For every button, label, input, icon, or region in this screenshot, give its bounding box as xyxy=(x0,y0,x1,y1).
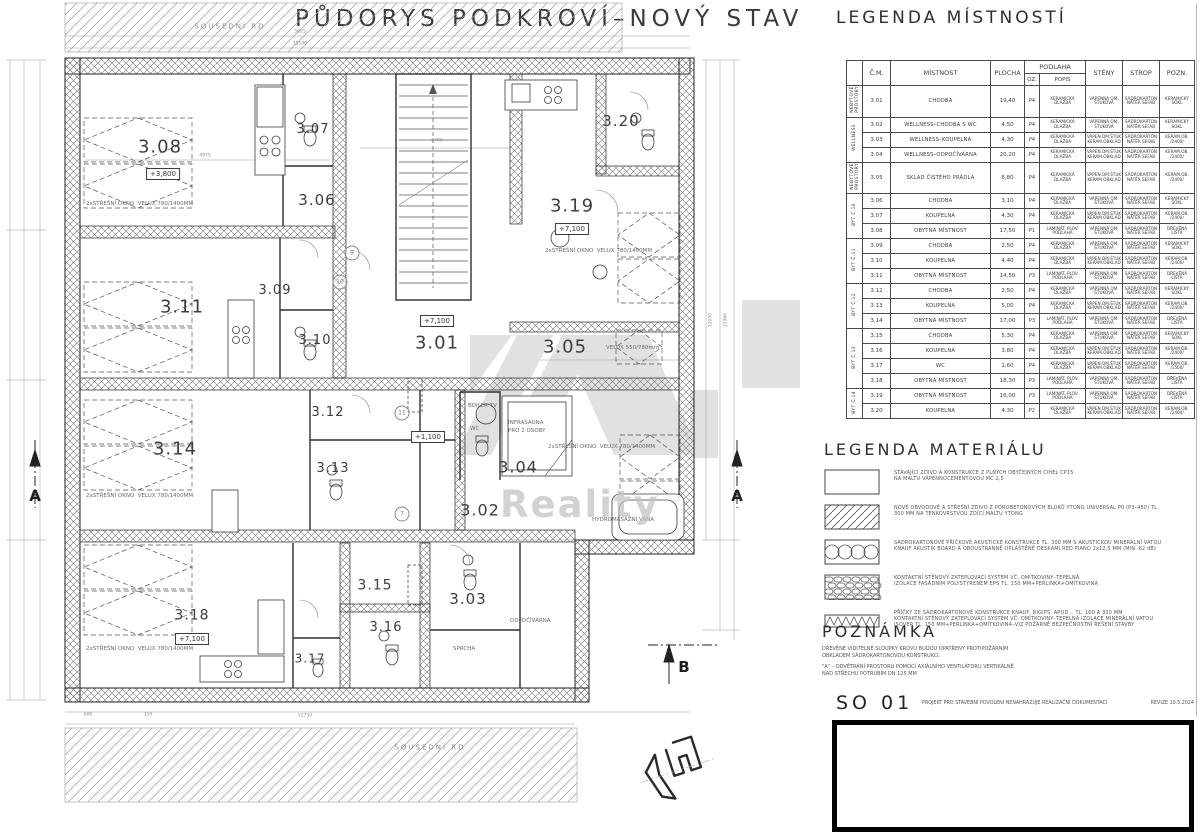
materials-legend: LEGENDA MATERIÁLU STÁVAJÍCÍ ZDIVO A KONS… xyxy=(824,440,1196,644)
col-cm: Č.M. xyxy=(863,61,891,86)
table-row: 29,00 M2 WELLNESS3.02WELLNESS–CHODBA S W… xyxy=(847,117,1195,132)
table-row: 19,70 M2 NEBYTOVÉPROSTORY3.05SKLAD ČISTÉ… xyxy=(847,162,1195,194)
col-pozn: POZN. xyxy=(1160,61,1195,86)
material-item: KONTAKTNÍ STĚNOVÝ ZATEPLOVACÍ SYSTÉM VČ.… xyxy=(824,574,1196,600)
note-lines: DŘEVĚNÉ VIDITELNÉ SLOUPKY KROVU BUDOU OP… xyxy=(822,646,1196,678)
watermark-text: Reality xyxy=(500,483,660,526)
room-legend-table: Č.M. MÍSTNOSTPLOCHA PODLAHASTĚNY STROPPO… xyxy=(846,60,1195,419)
note-line: DŘEVĚNÉ VIDITELNÉ SLOUPKY KROVU BUDOU OP… xyxy=(822,646,1196,660)
note-line: "A" – ODVĚTRÁNÍ PROSTORU POMOCÍ AXIÁLNÍH… xyxy=(822,664,1196,678)
legend-table-title: LEGENDA MÍSTNOSTÍ xyxy=(836,8,1067,28)
table-row: 24,90 M2 BYT Č.103.06CHODBA 3,10P4 KERAM… xyxy=(847,194,1195,209)
north-arrow-icon xyxy=(632,732,723,807)
group-cell: 24,50 M2 BYT Č.12 xyxy=(847,284,863,329)
title-block xyxy=(832,720,1194,832)
revision-label: REVIZE 10.5.2024 xyxy=(1151,701,1194,706)
col-strop: STROP xyxy=(1123,61,1160,86)
material-symbol-bricks xyxy=(824,574,882,600)
material-text: SÁDROKARTONOVÉ PŘÍČKOVÉ AKUSTICKÉ KONSTR… xyxy=(894,539,1161,552)
group-name: NEBYTOVÉPROSTORY xyxy=(850,163,860,190)
group-cell: 21,40 M2 BYT Č.11 xyxy=(847,239,863,284)
material-text: STÁVAJÍCÍ ZDIVO A KONSTRUKCE Z PLNÝCH OB… xyxy=(894,469,1074,482)
material-symbol-loops xyxy=(824,539,882,565)
table-row: 3.17WC 1,60P4 KERAMICKÁ DLAŽBAVÁPEN.OM.Š… xyxy=(847,359,1195,374)
note-title: POZNÁMKA xyxy=(822,622,1196,641)
col-steny: STĚNY xyxy=(1086,61,1123,86)
floor-plan xyxy=(0,0,820,833)
footer-text: PROJEKT PRO STAVEBNÍ POVOLENÍ NENAHRAZUJ… xyxy=(922,701,1107,706)
col-plocha: PLOCHA xyxy=(991,61,1025,86)
table-row: 3.04WELLNESS–ODPOČÍVÁRNA 20,20P4 KERAMIC… xyxy=(847,147,1195,162)
group-name: NEBYTOVÉPROSTORY xyxy=(850,86,860,113)
staircase xyxy=(396,74,471,300)
table-row: 3.03WELLNESS–KOUPELNA 4,30P4 KERAMICKÁ D… xyxy=(847,132,1195,147)
col-popis: POPIS xyxy=(1040,74,1086,86)
material-symbol-diag xyxy=(824,504,882,530)
footer-row: SO 01 PROJEKT PRO STAVEBNÍ POVOLENÍ NENA… xyxy=(836,692,1196,716)
group-cell: 24,90 M2 BYT Č.10 xyxy=(847,194,863,239)
table-row: 3.13KOUPELNA 5,00P4 KERAMICKÁ DLAŽBAVÁPE… xyxy=(847,299,1195,314)
table-row: 3.10KOUPELNA 4,40P4 KERAMICKÁ DLAŽBAVÁPE… xyxy=(847,254,1195,269)
material-item: SÁDROKARTONOVÉ PŘÍČKOVÉ AKUSTICKÉ KONSTR… xyxy=(824,539,1196,565)
table-row: 21,40 M2 BYT Č.113.09CHODBA 2,50P4 KERAM… xyxy=(847,239,1195,254)
group-name: WELLNESS xyxy=(852,124,857,151)
table-row: 20,30 M2 BYT Č.143.19OBYTNÁ MÍSTNOST 16,… xyxy=(847,389,1195,404)
col-mistnost: MÍSTNOST xyxy=(891,61,991,86)
group-cell: 20,30 M2 BYT Č.14 xyxy=(847,389,863,419)
group-cell: 29,00 M2 WELLNESS xyxy=(847,117,863,162)
table-row: 3.14OBYTNÁ MÍSTNOST 17,00P3 LAMINÁT. PLO… xyxy=(847,314,1195,329)
materials-legend-title: LEGENDA MATERIÁLU xyxy=(824,440,1196,459)
table-row: 3.16KOUPELNA 3,80P4 KERAMICKÁ DLAŽBAVÁPE… xyxy=(847,344,1195,359)
table-row: 3.08OBYTNÁ MÍSTNOST 17,50P1 LAMINÁT. PLO… xyxy=(847,224,1195,239)
materials-items: STÁVAJÍCÍ ZDIVO A KONSTRUKCE Z PLNÝCH OB… xyxy=(824,469,1196,635)
group-name: BYT Č.12 xyxy=(852,293,857,316)
table-row: 25,30 M2 NEBYTOVÉPROSTORY3.01CHODBA 19,4… xyxy=(847,86,1195,118)
table-row: 3.20KOUPELNA 4,30P2 KERAMICKÁ DLAŽBAVÁPE… xyxy=(847,404,1195,419)
material-text: NOVÉ OBVODOVÉ A STŘEŠNÍ ZDIVO Z PÓROBETO… xyxy=(894,504,1159,517)
page-edge-line xyxy=(1196,4,1197,716)
drawing-sheet: PŮDORYS PODKROVÍ–NOVÝ STAV xyxy=(0,0,1200,833)
col-podlaha: PODLAHA xyxy=(1025,61,1086,74)
table-row: 3.18OBYTNÁ MÍSTNOST 18,30P3 LAMINÁT. PLO… xyxy=(847,374,1195,389)
table-row: 3.11OBYTNÁ MÍSTNOST 14,50P3 LAMINÁT. PLO… xyxy=(847,269,1195,284)
table-row: 24,50 M2 BYT Č.123.12CHODBA 2,50P4 KERAM… xyxy=(847,284,1195,299)
table-row: 3.07KOUPELNA 4,30P4 KERAMICKÁ DLAŽBAVÁPE… xyxy=(847,209,1195,224)
group-name: BYT Č.14 xyxy=(852,391,857,414)
group-name: BYT Č.10 xyxy=(852,203,857,226)
col-oz: OZ. xyxy=(1025,74,1040,86)
material-item: NOVÉ OBVODOVÉ A STŘEŠNÍ ZDIVO Z PÓROBETO… xyxy=(824,504,1196,530)
table-row: 29,00 M2 BYT Č.133.15CHODBA 5,30P4 KERAM… xyxy=(847,329,1195,344)
material-symbol-plain xyxy=(824,469,882,495)
drawing-code: SO 01 xyxy=(836,692,913,714)
group-cell: 29,00 M2 BYT Č.13 xyxy=(847,329,863,389)
group-name: BYT Č.13 xyxy=(852,346,857,369)
note-block: POZNÁMKA DŘEVĚNÉ VIDITELNÉ SLOUPKY KROVU… xyxy=(822,622,1196,682)
material-item: STÁVAJÍCÍ ZDIVO A KONSTRUKCE Z PLNÝCH OB… xyxy=(824,469,1196,495)
group-cell: 25,30 M2 NEBYTOVÉPROSTORY xyxy=(847,86,863,118)
material-text: KONTAKTNÍ STĚNOVÝ ZATEPLOVACÍ SYSTÉM VČ.… xyxy=(894,574,1098,587)
group-cell: 19,70 M2 NEBYTOVÉPROSTORY xyxy=(847,162,863,194)
group-name: BYT Č.11 xyxy=(852,248,857,271)
